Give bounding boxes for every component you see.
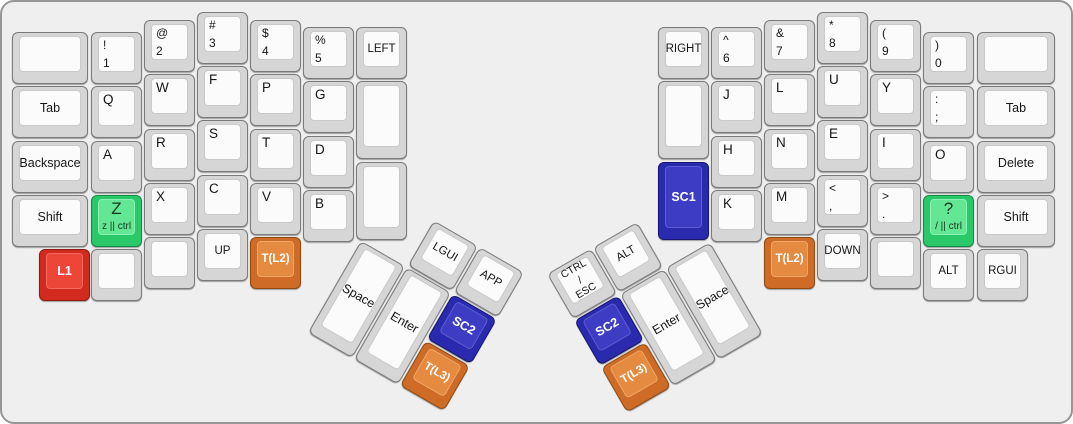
- keytop: <,: [824, 179, 861, 215]
- keytop: DOWN: [824, 233, 861, 269]
- key-blank-left-col7-bottom[interactable]: [356, 162, 407, 240]
- key-exclam-1[interactable]: !1: [91, 32, 142, 84]
- keytop: M: [771, 187, 808, 223]
- keytop: Y: [877, 78, 914, 114]
- key-blank-left-col7-mid[interactable]: [356, 81, 407, 159]
- keytop: Backspace: [19, 145, 81, 181]
- key-legend: K: [719, 195, 754, 229]
- key-legend: (9: [878, 25, 913, 59]
- key-legend: L: [772, 79, 807, 113]
- key-legend: Q: [99, 91, 134, 125]
- key-legend: O: [931, 146, 966, 180]
- key-f[interactable]: F: [197, 66, 248, 118]
- keytop: J: [718, 85, 755, 121]
- keytop: H: [718, 140, 755, 176]
- keytop: V: [257, 187, 294, 223]
- key-legend: C: [205, 180, 240, 214]
- key-r[interactable]: R: [144, 129, 195, 181]
- keytop: APP: [466, 254, 516, 304]
- key-legend: R: [152, 134, 187, 168]
- key-legend: M: [772, 188, 807, 222]
- key-legend: X: [152, 188, 187, 222]
- key-legend: T(L2): [258, 242, 293, 276]
- keytop: )0: [930, 36, 967, 72]
- key-legend: )0: [931, 37, 966, 71]
- key-o[interactable]: O: [923, 141, 974, 193]
- keytop: Tab: [19, 90, 81, 126]
- keytop: G: [310, 85, 347, 121]
- key-star-8[interactable]: *8: [817, 12, 868, 64]
- keytop: CTRL/ESC: [555, 255, 605, 305]
- key-legend: D: [311, 141, 346, 175]
- key-e[interactable]: E: [817, 120, 868, 172]
- key-i[interactable]: I: [870, 129, 921, 181]
- keytop: ALT: [930, 253, 967, 289]
- key-down[interactable]: DOWN: [817, 229, 868, 281]
- key-legend: Shift: [985, 200, 1047, 234]
- keytop: B: [310, 194, 347, 230]
- keytop: [19, 36, 81, 72]
- key-g[interactable]: G: [303, 81, 354, 133]
- keytop: [151, 241, 188, 277]
- key-b[interactable]: B: [303, 190, 354, 242]
- key-legend: Backspace: [20, 146, 80, 180]
- key-legend: T(L3): [610, 350, 657, 397]
- keytop: T(L2): [257, 241, 294, 277]
- key-x[interactable]: X: [144, 183, 195, 235]
- key-at-2[interactable]: @2: [144, 20, 195, 72]
- key-less-comma[interactable]: <,: [817, 175, 868, 227]
- keytop: [363, 85, 400, 147]
- key-blank-left-top[interactable]: [12, 32, 88, 84]
- key-legend: DOWN: [825, 234, 860, 268]
- keytop: A: [98, 145, 135, 181]
- keytop: W: [151, 78, 188, 114]
- keytop: R: [151, 133, 188, 169]
- key-legend: Delete: [985, 146, 1047, 180]
- key-s[interactable]: S: [197, 120, 248, 172]
- key-legend: L1: [47, 254, 82, 288]
- key-legend: ALT: [602, 230, 649, 277]
- key-legend: <,: [825, 180, 860, 214]
- key-l[interactable]: L: [764, 74, 815, 126]
- key-legend: CTRL/ESC: [556, 257, 603, 304]
- key-legend: Tab: [20, 91, 80, 125]
- keytop: [877, 241, 914, 277]
- key-q[interactable]: Q: [91, 86, 142, 138]
- key-legend: :;: [931, 91, 966, 125]
- key-legend: H: [719, 141, 754, 175]
- key-legend: G: [311, 86, 346, 120]
- keytop: RGUI: [984, 253, 1021, 289]
- keytop: K: [718, 194, 755, 230]
- key-t[interactable]: T: [250, 129, 301, 181]
- key-t-l2-right[interactable]: T(L2): [764, 237, 815, 289]
- keytop: *8: [824, 16, 861, 52]
- keytop: $4: [257, 24, 294, 60]
- key-colon-semicolon[interactable]: :;: [923, 86, 974, 138]
- key-legend: N: [772, 134, 807, 168]
- key-legend: W: [152, 79, 187, 113]
- key-legend: >.: [878, 188, 913, 222]
- key-legend: J: [719, 86, 754, 120]
- keytop: SC2: [582, 302, 632, 352]
- keytop: C: [204, 179, 241, 215]
- key-legend: T(L3): [413, 349, 460, 396]
- key-tab-left[interactable]: Tab: [12, 86, 88, 138]
- key-delete[interactable]: Delete: [977, 141, 1055, 193]
- key-legend: ?/ || ctrl: [931, 200, 966, 234]
- key-sc1[interactable]: SC1: [658, 162, 709, 240]
- key-caret-6[interactable]: ^6: [711, 27, 762, 79]
- key-left[interactable]: LEFT: [356, 27, 407, 79]
- key-legend: ALT: [931, 254, 966, 288]
- key-legend: RIGHT: [666, 32, 701, 66]
- keyboard-case: SpaceEnterLGUIAPPSC2T(L3)CTRL/ESCALTSC2T…: [0, 0, 1073, 424]
- keytop: (9: [877, 24, 914, 60]
- key-legend: A: [99, 146, 134, 180]
- key-rgui[interactable]: RGUI: [977, 249, 1028, 301]
- key-paren-9[interactable]: (9: [870, 20, 921, 72]
- key-legend: T(L2): [772, 242, 807, 276]
- keytop: ALT: [601, 229, 651, 279]
- key-blank-left-col3-bottom[interactable]: [144, 237, 195, 289]
- keytop: #3: [204, 16, 241, 52]
- key-greater-period[interactable]: >.: [870, 183, 921, 235]
- keytop: LEFT: [363, 31, 400, 67]
- key-legend: SC2: [440, 302, 487, 349]
- keytop: Zz || ctrl: [98, 199, 135, 235]
- key-legend: !1: [99, 37, 134, 71]
- keytop: E: [824, 124, 861, 160]
- keytop: ?/ || ctrl: [930, 199, 967, 235]
- keytop: [665, 85, 702, 147]
- keytop: P: [257, 78, 294, 114]
- key-y[interactable]: Y: [870, 74, 921, 126]
- key-legend: UP: [205, 234, 240, 268]
- keytop: >.: [877, 187, 914, 223]
- key-d[interactable]: D: [303, 136, 354, 188]
- key-up[interactable]: UP: [197, 229, 248, 281]
- key-right[interactable]: RIGHT: [658, 27, 709, 79]
- keytop: ^6: [718, 31, 755, 67]
- keytop: T: [257, 133, 294, 169]
- key-legend: S: [205, 125, 240, 159]
- key-percent-5[interactable]: %5: [303, 27, 354, 79]
- keytop: N: [771, 133, 808, 169]
- key-legend: SC1: [666, 167, 701, 227]
- keytop: RIGHT: [665, 31, 702, 67]
- keytop: Delete: [984, 145, 1048, 181]
- keytop: U: [824, 70, 861, 106]
- key-blank-right-col1-mid[interactable]: [658, 81, 709, 159]
- key-legend: V: [258, 188, 293, 222]
- key-m[interactable]: M: [764, 183, 815, 235]
- key-backspace[interactable]: Backspace: [12, 141, 88, 193]
- keytop: UP: [204, 233, 241, 269]
- key-h[interactable]: H: [711, 136, 762, 188]
- key-question-ctrl[interactable]: ?/ || ctrl: [923, 195, 974, 247]
- key-p[interactable]: P: [250, 74, 301, 126]
- keytop: !1: [98, 36, 135, 72]
- keytop: @2: [151, 24, 188, 60]
- key-legend: LGUI: [421, 229, 468, 276]
- key-legend: Y: [878, 79, 913, 113]
- key-blank-left-col2-bottom[interactable]: [91, 249, 142, 301]
- key-shift-left[interactable]: Shift: [12, 195, 88, 247]
- keytop: &7: [771, 24, 808, 60]
- keytop: LGUI: [420, 227, 470, 277]
- key-legend: #3: [205, 17, 240, 51]
- key-legend: B: [311, 195, 346, 229]
- key-hash-3[interactable]: #3: [197, 12, 248, 64]
- keytop: L1: [46, 253, 83, 289]
- key-legend: Zz || ctrl: [99, 200, 134, 234]
- key-legend: LEFT: [364, 32, 399, 66]
- keytop: L: [771, 78, 808, 114]
- key-legend: F: [205, 71, 240, 105]
- key-paren-0[interactable]: )0: [923, 32, 974, 84]
- key-dollar-4[interactable]: $4: [250, 20, 301, 72]
- key-z-ctrl[interactable]: Zz || ctrl: [91, 195, 142, 247]
- keytop: D: [310, 140, 347, 176]
- key-k[interactable]: K: [711, 190, 762, 242]
- key-legend: &7: [772, 25, 807, 59]
- keytop: I: [877, 133, 914, 169]
- key-amp-7[interactable]: &7: [764, 20, 815, 72]
- keytop: %5: [310, 31, 347, 67]
- keytop: S: [204, 124, 241, 160]
- key-tab-right[interactable]: Tab: [977, 86, 1055, 138]
- keytop: T(L2): [771, 241, 808, 277]
- keytop: Shift: [19, 199, 81, 235]
- key-n[interactable]: N: [764, 129, 815, 181]
- key-l1[interactable]: L1: [39, 249, 90, 301]
- key-legend: APP: [467, 255, 514, 302]
- key-j[interactable]: J: [711, 81, 762, 133]
- key-alt[interactable]: ALT: [923, 249, 974, 301]
- keytop: T(L3): [609, 349, 659, 399]
- key-legend: P: [258, 79, 293, 113]
- keytop: O: [930, 145, 967, 181]
- keytop: X: [151, 187, 188, 223]
- keytop: [98, 253, 135, 289]
- key-legend: %5: [311, 32, 346, 66]
- key-legend: T: [258, 134, 293, 168]
- keytop: Tab: [984, 90, 1048, 126]
- key-a[interactable]: A: [91, 141, 142, 193]
- keytop: SC1: [665, 166, 702, 228]
- key-u[interactable]: U: [817, 66, 868, 118]
- key-blank-right-top[interactable]: [977, 32, 1055, 84]
- key-legend: ^6: [719, 32, 754, 66]
- key-legend: $4: [258, 25, 293, 59]
- keytop: [363, 166, 400, 228]
- key-c[interactable]: C: [197, 175, 248, 227]
- key-v[interactable]: V: [250, 183, 301, 235]
- key-legend: *8: [825, 17, 860, 51]
- key-t-l2-left[interactable]: T(L2): [250, 237, 301, 289]
- key-w[interactable]: W: [144, 74, 195, 126]
- keytop: [984, 36, 1048, 72]
- key-legend: SC2: [583, 304, 630, 351]
- key-legend: Tab: [985, 91, 1047, 125]
- key-legend: E: [825, 125, 860, 159]
- key-blank-right-col5-bottom[interactable]: [870, 237, 921, 289]
- key-legend: RGUI: [985, 254, 1020, 288]
- key-legend: I: [878, 134, 913, 168]
- key-shift-right[interactable]: Shift: [977, 195, 1055, 247]
- key-legend: U: [825, 71, 860, 105]
- key-legend: Shift: [20, 200, 80, 234]
- keytop: Shift: [984, 199, 1048, 235]
- keytop: F: [204, 70, 241, 106]
- key-legend: @2: [152, 25, 187, 59]
- keytop: Q: [98, 90, 135, 126]
- keytop: :;: [930, 90, 967, 126]
